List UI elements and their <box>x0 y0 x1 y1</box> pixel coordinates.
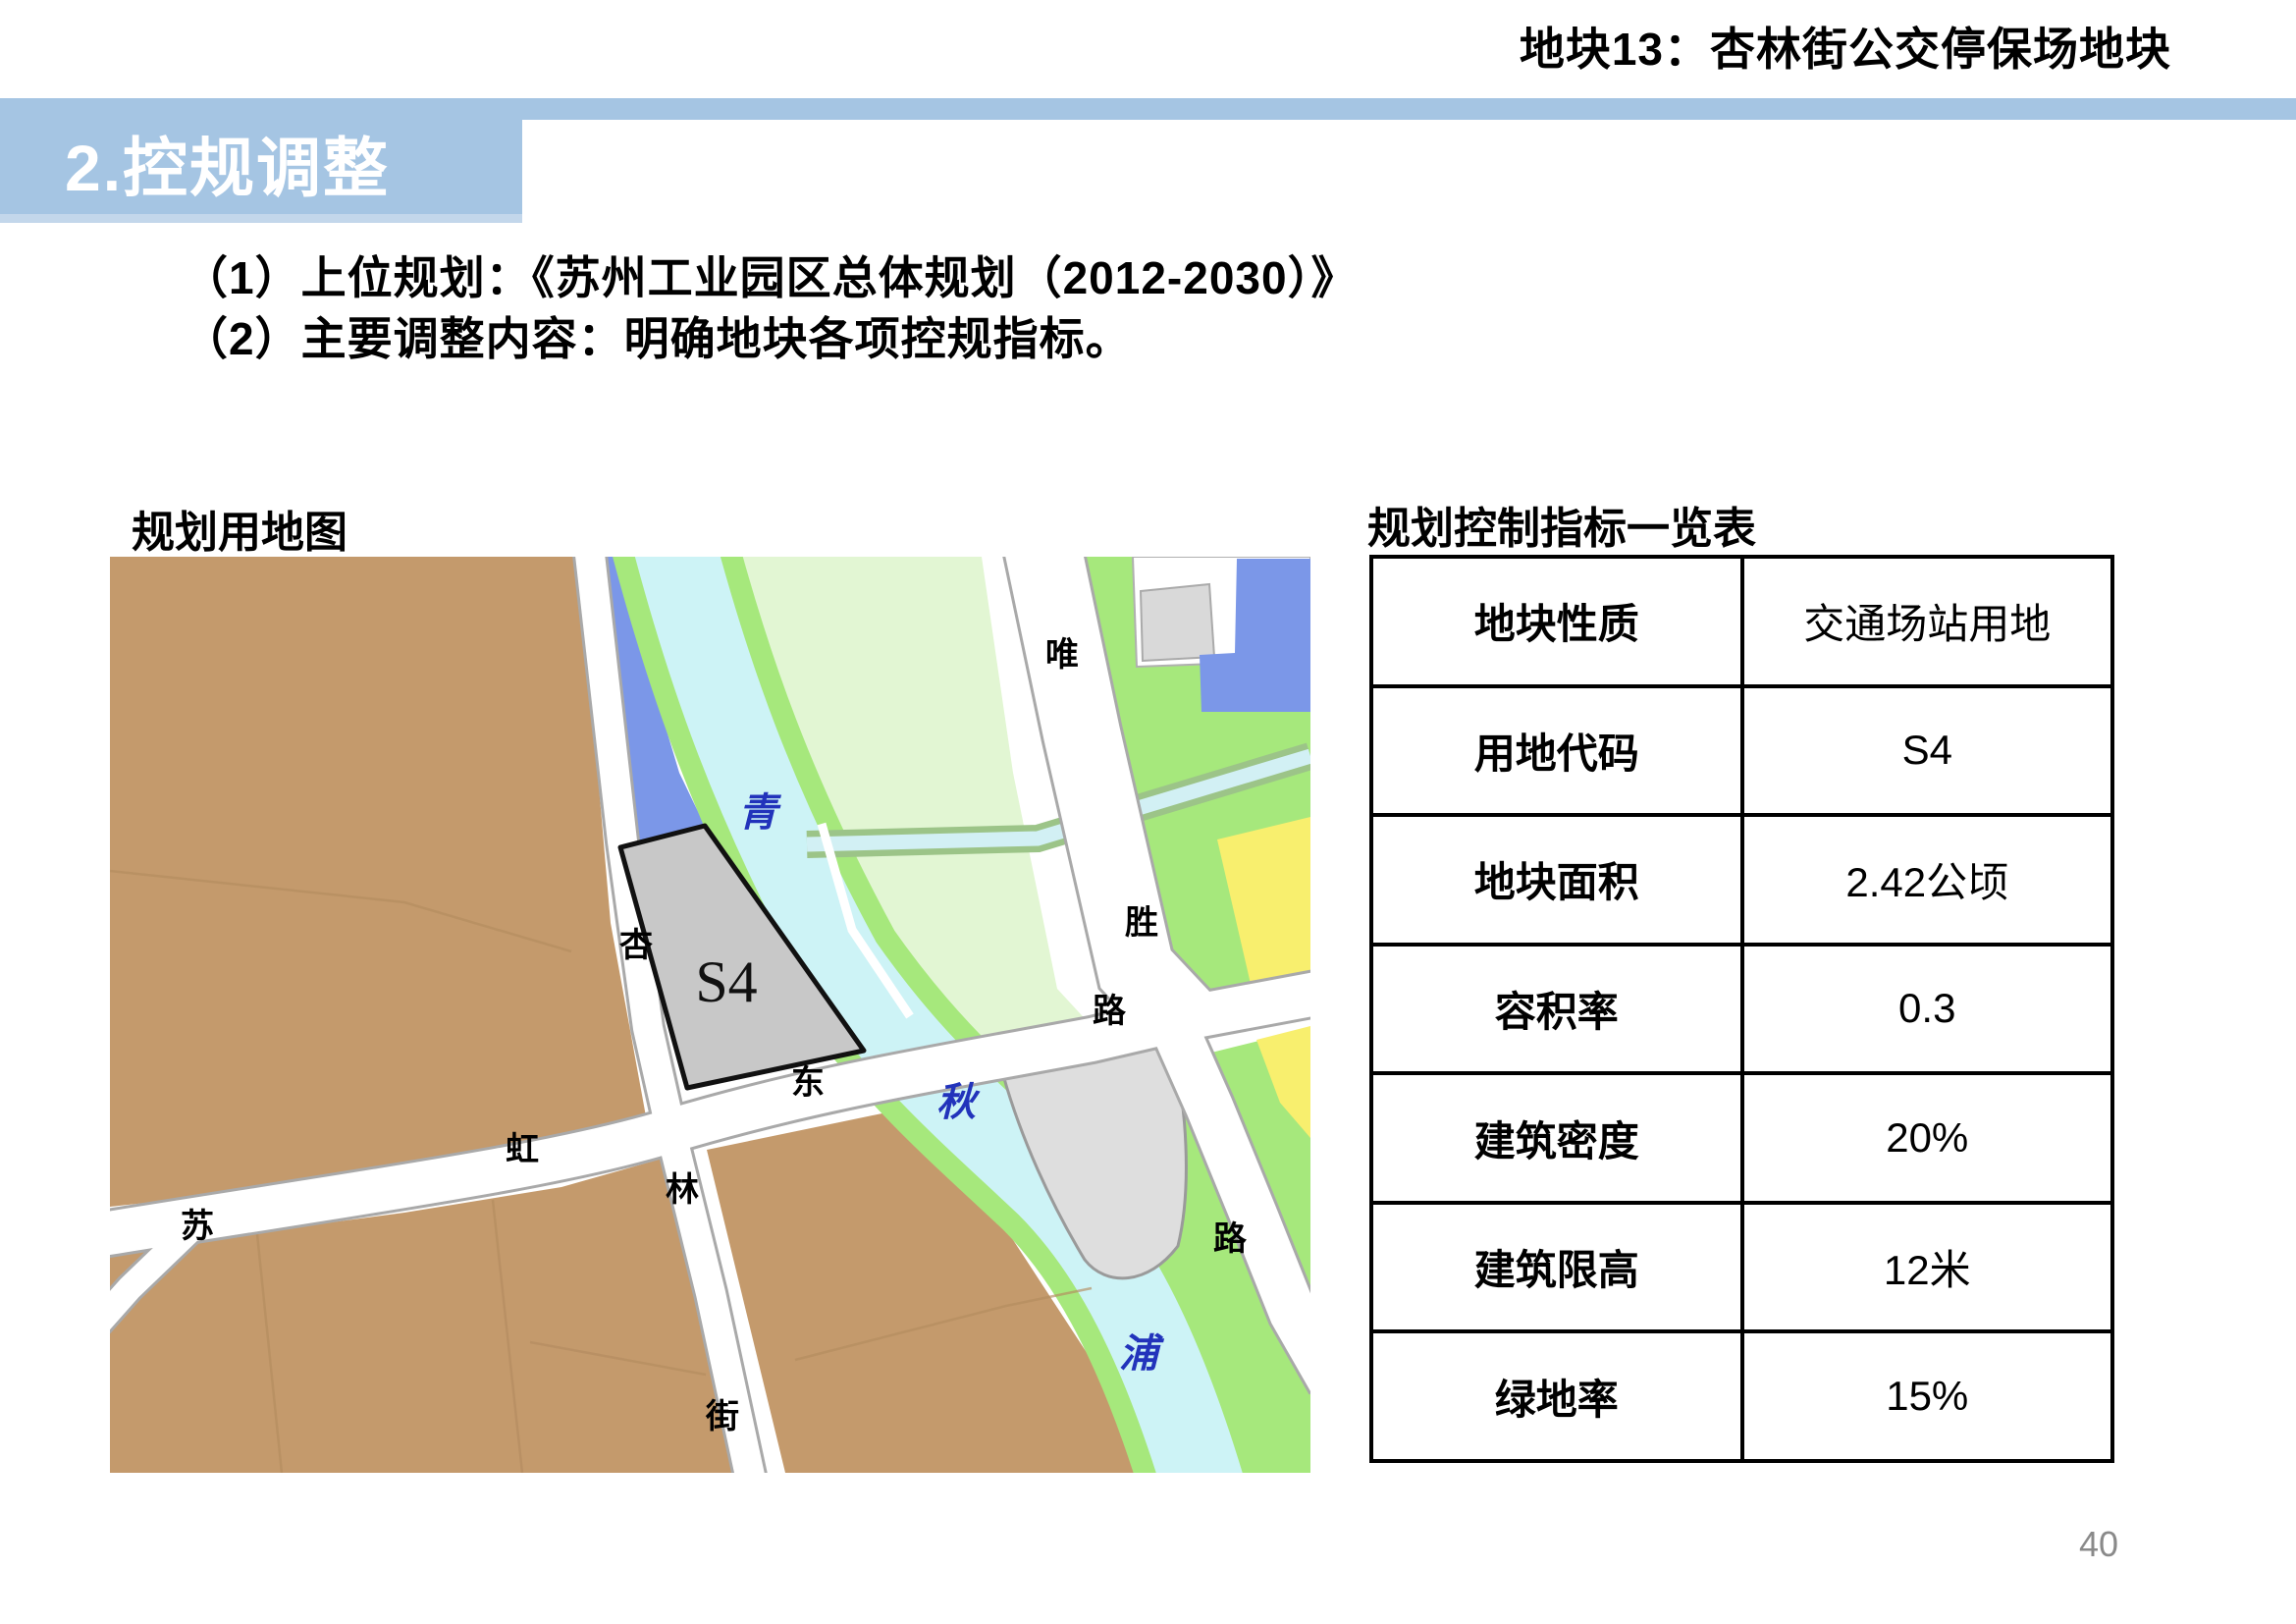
map-brown-upper-left <box>110 557 646 1207</box>
body-text: （1）上位规划：《苏州工业园区总体规划（2012-2030）》 （2）主要调整内… <box>183 247 1358 369</box>
indicator-name: 地块性质 <box>1371 557 1742 686</box>
table-caption: 规划控制指标一览表 <box>1367 493 1756 556</box>
indicator-value: 0.3 <box>1742 945 2113 1074</box>
indicator-value: 12米 <box>1742 1203 2113 1332</box>
road-label-xing: 杏 <box>619 929 653 962</box>
table-row: 用地代码 S4 <box>1371 686 2112 816</box>
road-label-lu1: 路 <box>1093 995 1126 1028</box>
road-label-su: 苏 <box>181 1210 214 1243</box>
indicator-value: 15% <box>1742 1331 2113 1461</box>
river-label-pu: 浦 <box>1119 1334 1158 1374</box>
section-banner-label: 2.控规调整 <box>65 116 390 210</box>
indicator-value: 交通场站用地 <box>1742 557 2113 686</box>
table-row: 地块性质 交通场站用地 <box>1371 557 2112 686</box>
road-label-hong: 虹 <box>506 1133 539 1166</box>
indicator-value: S4 <box>1742 686 2113 816</box>
page-title: 地块13：杏林街公交停保场地块 <box>1520 14 2171 79</box>
land-use-map: S4 青 秋 浦 唯 胜 路 路 杏 林 街 苏 虹 东 <box>110 557 1310 1473</box>
plot-s4-label: S4 <box>695 952 757 1011</box>
section-banner: 2.控规调整 <box>0 98 522 214</box>
road-label-lin: 林 <box>666 1173 699 1207</box>
indicator-name: 绿地率 <box>1371 1331 1742 1461</box>
map-caption: 规划用地图 <box>132 497 347 560</box>
table-row: 建筑密度 20% <box>1371 1073 2112 1203</box>
indicator-name: 建筑限高 <box>1371 1203 1742 1332</box>
road-label-wei: 唯 <box>1045 638 1079 672</box>
table-row: 地块面积 2.42公顷 <box>1371 815 2112 945</box>
table-row: 绿地率 15% <box>1371 1331 2112 1461</box>
road-label-jie: 街 <box>706 1400 739 1434</box>
map-gray-building <box>1141 584 1214 661</box>
road-label-lu2: 路 <box>1213 1222 1247 1256</box>
indicator-name: 地块面积 <box>1371 815 1742 945</box>
slide-page: { "header": { "title": "地块13：杏林街公交停保场地块"… <box>0 0 2296 1624</box>
road-label-sheng: 胜 <box>1125 906 1158 940</box>
table-row: 容积率 0.3 <box>1371 945 2112 1074</box>
road-label-dong: 东 <box>791 1066 825 1100</box>
table-row: 建筑限高 12米 <box>1371 1203 2112 1332</box>
body-line-2: （2）主要调整内容：明确地块各项控规指标。 <box>183 308 1358 369</box>
page-number: 40 <box>2079 1524 2118 1565</box>
planning-indicators-table: 地块性质 交通场站用地 用地代码 S4 地块面积 2.42公顷 容积率 0.3 … <box>1369 555 2114 1463</box>
body-line-1: （1）上位规划：《苏州工业园区总体规划（2012-2030）》 <box>183 247 1358 308</box>
banner-accent-strip <box>0 214 522 223</box>
river-label-qing: 青 <box>738 793 777 833</box>
indicator-name: 容积率 <box>1371 945 1742 1074</box>
indicator-value: 20% <box>1742 1073 2113 1203</box>
indicator-name: 建筑密度 <box>1371 1073 1742 1203</box>
river-label-qiu: 秋 <box>936 1083 976 1122</box>
indicator-value: 2.42公顷 <box>1742 815 2113 945</box>
indicator-name: 用地代码 <box>1371 686 1742 816</box>
